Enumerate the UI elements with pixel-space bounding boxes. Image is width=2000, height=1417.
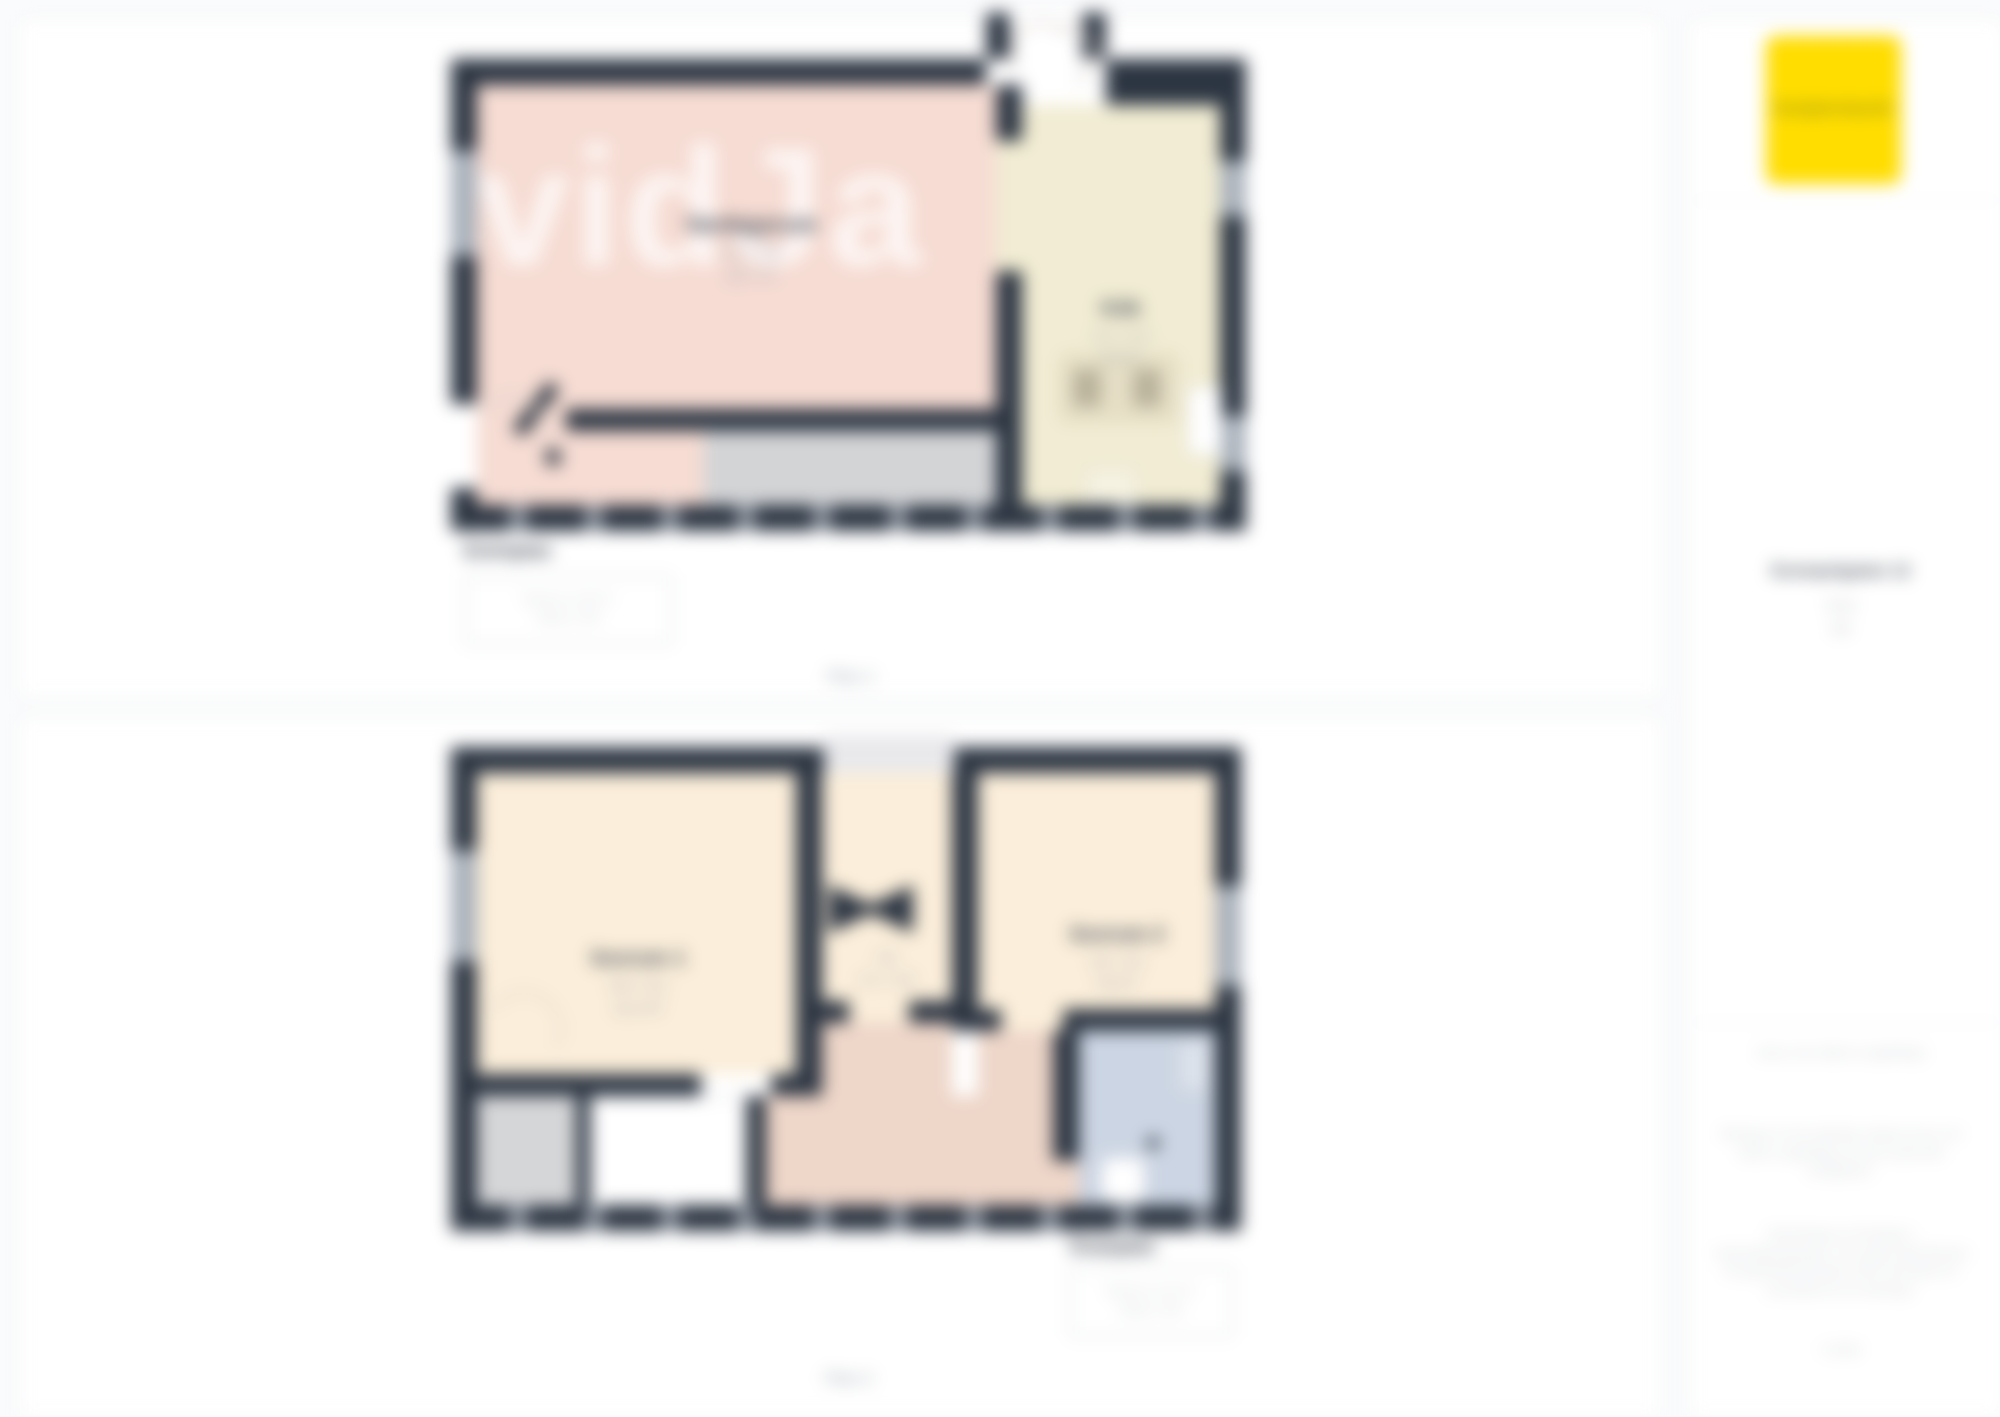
plan2-legend-line2: Skala 1:100: [1071, 1303, 1231, 1317]
plan2-legend-box: Boarea ca 42 m² Skala 1:100: [1069, 1267, 1233, 1337]
wall2-top-left: [451, 747, 824, 773]
sidebar-address: Exempelgatan 12: [1701, 561, 1981, 581]
balcony-floor: [704, 431, 1022, 505]
plan2-card: Sovrum 1 3,6 × 3,1 11,2 m² Klk 2,1 × 2,6…: [20, 718, 1660, 1417]
wall-top-left: [451, 59, 986, 85]
bedroom1-label: Sovrum 1 3,6 × 3,1 11,2 m²: [508, 947, 768, 1017]
plan2-page-label: Plan 2: [789, 1369, 909, 1389]
plan1-legend-box: Boarea ca 28 m² Skala 1:100: [464, 575, 672, 645]
sidebar-floor: 2 tr: [1701, 621, 1981, 636]
closet-dim1: 2,1 × 2,6: [827, 971, 947, 987]
bedroom1-dim1: 3,6 × 3,1: [508, 977, 768, 994]
window-wall-bottom: [451, 505, 1246, 531]
living-room-label: Vardagsrum 5,2 × 3,6 18,7 m²: [621, 211, 881, 284]
window-right-upper: [1220, 161, 1246, 216]
wall2-stair-right: [746, 1096, 766, 1205]
wall2-v1: [796, 773, 822, 1096]
shower-icon: [1179, 1041, 1209, 1091]
plan1-card: vidJa Vardagsrum 5,2 × 3,6 18,7 m²: [20, 20, 1660, 697]
closet-label: Klk 2,1 × 2,6: [827, 943, 947, 987]
kitchen-label: Kök 4,1 × 2,3 9,4 m²: [1041, 297, 1201, 365]
sink-icon: [1188, 387, 1222, 455]
storage-floor: [477, 1096, 576, 1205]
sidebar-area: 70 m²: [1701, 599, 1981, 613]
plan1-legend-line1: Boarea ca 28 m²: [466, 592, 670, 606]
sidebar-disclaimer-2: Planritningen är framtagen i marknadsför…: [1713, 1225, 1969, 1299]
window2-right: [1215, 886, 1241, 986]
window-right-lower: [1220, 416, 1246, 471]
plan2-legend-line1: Boarea ca 42 m²: [1071, 1284, 1231, 1298]
sidebar-note: Areor och mått är ungefärliga: [1701, 1045, 1981, 1060]
bedroom1-name: Sovrum 1: [508, 947, 768, 971]
sidebar-disclaimer-1: Ritningen är inte skalenlig. Angivna are…: [1713, 1125, 1969, 1181]
kitchen-dim2: 9,4 m²: [1041, 349, 1201, 365]
closet-name: Klk: [827, 949, 947, 965]
wall2-v2: [952, 773, 978, 1031]
kitchen-name: Kök: [1041, 297, 1201, 321]
doorway-bedroom1: [701, 1074, 771, 1096]
chair-icon: [1133, 369, 1161, 407]
doorway-closet: [849, 1001, 909, 1023]
window2-left: [451, 851, 477, 961]
bedroom2-dim2: 9,6 m²: [1037, 975, 1197, 991]
toilet-icon: [1101, 1157, 1145, 1203]
sidebar-divider-top: [1691, 200, 2000, 201]
wall2-top-right: [954, 747, 1241, 773]
sidebar-divider-bottom: [1691, 1022, 2000, 1023]
sidebar-footer: © 2024: [1701, 1343, 1981, 1357]
bedroom2-name: Sovrum 2: [1037, 923, 1197, 947]
hall2-floor-b: [822, 1023, 952, 1096]
living-room-dim1: 5,2 × 3,6: [621, 244, 881, 261]
plan1-caption-title: Entréplan: [464, 541, 552, 563]
floorplan-page: vidJa Vardagsrum 5,2 × 3,6 18,7 m²: [0, 0, 2000, 1415]
drain-icon: [1147, 1137, 1159, 1149]
appliance-icon: [1086, 469, 1136, 505]
furniture-dot: [546, 449, 560, 465]
sidebar: fastighetsbyrån Exempelgatan 12 70 m² 2 …: [1690, 20, 2000, 1417]
window-wall2-bottom: [451, 1205, 1241, 1231]
living-room-name: Vardagsrum: [621, 211, 881, 238]
wall2-left: [451, 747, 477, 1231]
bay-recess: [824, 735, 954, 775]
plan1-page-label: Plan 1: [791, 667, 911, 687]
brand-logo: fastighetsbyrån: [1766, 36, 1901, 184]
wall-living-bottom: [566, 409, 1022, 431]
bedroom2-dim1: 3,0 × 3,2: [1037, 953, 1197, 969]
chair-icon: [1073, 369, 1101, 407]
hall2-floor-c: [978, 1031, 1053, 1096]
wall2-stair-left: [576, 1096, 590, 1205]
stair-void: [590, 1096, 750, 1209]
bedroom2-label: Sovrum 2 3,0 × 3,2 9,6 m²: [1037, 923, 1197, 991]
hall2-floor-a: [766, 1096, 1053, 1205]
doorway-bath: [1053, 1161, 1079, 1205]
plan1-legend-line2: Skala 1:100: [466, 611, 670, 625]
brand-logo-text: fastighetsbyrån: [1766, 100, 1901, 117]
entry-stub-left: [986, 13, 1010, 59]
doorway-bedroom2: [1001, 1009, 1063, 1031]
living-room-dim2: 18,7 m²: [621, 267, 881, 284]
plan2-caption-title: Ovanplan: [1069, 1237, 1156, 1259]
bedroom1-dim2: 11,2 m²: [508, 1000, 768, 1017]
window-left: [451, 151, 477, 256]
kitchen-dim1: 4,1 × 2,3: [1041, 327, 1201, 343]
doorway-kitchen: [996, 141, 1022, 271]
